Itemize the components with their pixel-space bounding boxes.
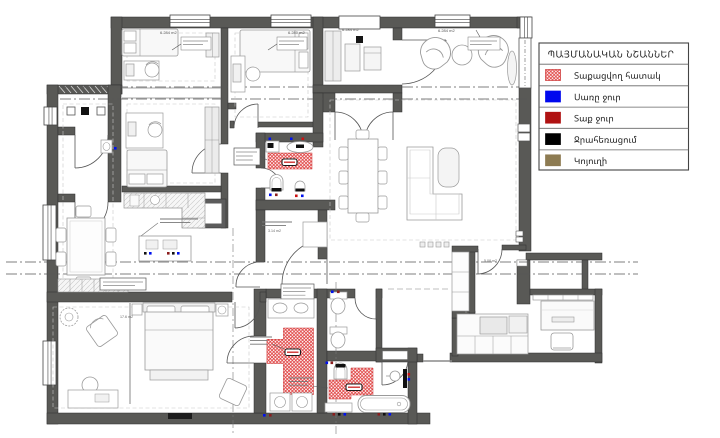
svg-text:3.14 m2: 3.14 m2 — [268, 229, 281, 233]
svg-text:17.6 m2: 17.6 m2 — [120, 315, 133, 319]
svg-text:5.08 m2: 5.08 m2 — [484, 259, 497, 263]
svg-text:6.284 m2: 6.284 m2 — [438, 28, 455, 33]
svg-text:6.280 m2: 6.280 m2 — [288, 30, 305, 35]
svg-text:6.284 m2: 6.284 m2 — [342, 27, 359, 32]
svg-text:6.284 m2: 6.284 m2 — [160, 30, 177, 35]
